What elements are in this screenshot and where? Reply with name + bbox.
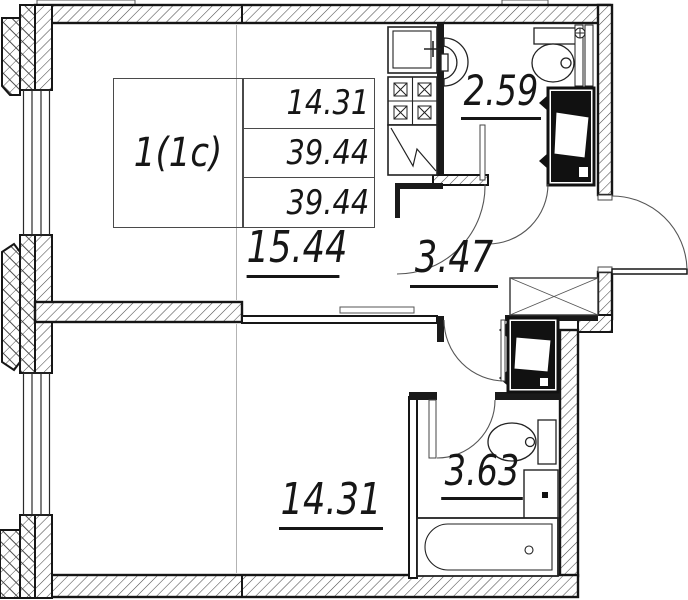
bathroom-top-area-label: 2.59 [461,70,541,120]
room-entry-door [444,320,505,381]
pilaster [2,18,20,95]
door-leaf [501,320,505,381]
door-leaf [429,400,436,458]
bathroom-bottom-area-label: 3.63 [441,450,523,500]
sliding-partition-leaf [340,307,414,313]
door-swing-arc [488,184,548,244]
total-area-with-balcony-value: 39.44 [286,186,374,220]
door-swing-arc [444,320,505,381]
window [24,90,50,235]
right-wall-mid [598,272,612,319]
hallway-area-label: 3.47 [410,236,498,288]
stove [388,77,437,125]
window [24,373,50,515]
right-wall-upper [598,5,612,195]
ventilation-shaft [499,318,558,392]
living-kitchen-area-label: 15.44 [247,226,340,278]
top-wall [35,5,610,23]
room-partition-wall [35,302,242,322]
apartment-type-box: 1(1c) [113,78,243,228]
kitchen-stub-wall-h [395,183,443,189]
bathroom-top-door [480,125,548,244]
right-wall-lower [560,330,578,576]
door-leaf [480,125,485,180]
door-leaf [612,269,687,274]
riser-pipes [575,25,593,86]
sink [524,470,558,520]
bottom-wall [35,575,578,597]
area-info-table: 14.31 39.44 39.44 [243,78,375,228]
table-row: 14.31 [244,79,374,129]
door-swing-arc [612,196,687,269]
kitchen-bath-wall [437,23,444,175]
pilaster [0,530,20,598]
table-row: 39.44 [244,178,374,227]
kitchen-stub-wall-v [395,189,400,218]
door-jamb [437,316,444,342]
sliding-partition-track [242,316,437,323]
total-area-value: 39.44 [286,136,374,170]
room-bath-wall [409,397,417,578]
bath-bottom-top-wall-left [409,392,437,400]
living-area-value: 14.31 [286,86,374,120]
floor-plan: 1(1c) 14.31 39.44 39.44 15.44 2.59 3.47 … [0,0,688,600]
wardrobe [510,278,598,315]
ventilation-shaft [539,88,594,185]
apartment-type-label: 1(1c) [134,133,222,173]
table-row: 39.44 [244,129,374,179]
pilaster [2,244,20,370]
entrance-door [598,195,687,274]
bedroom-area-label: 14.31 [279,478,383,530]
refrigerator [388,125,437,175]
bathtub [417,518,558,576]
kitchen-sink [388,27,441,73]
